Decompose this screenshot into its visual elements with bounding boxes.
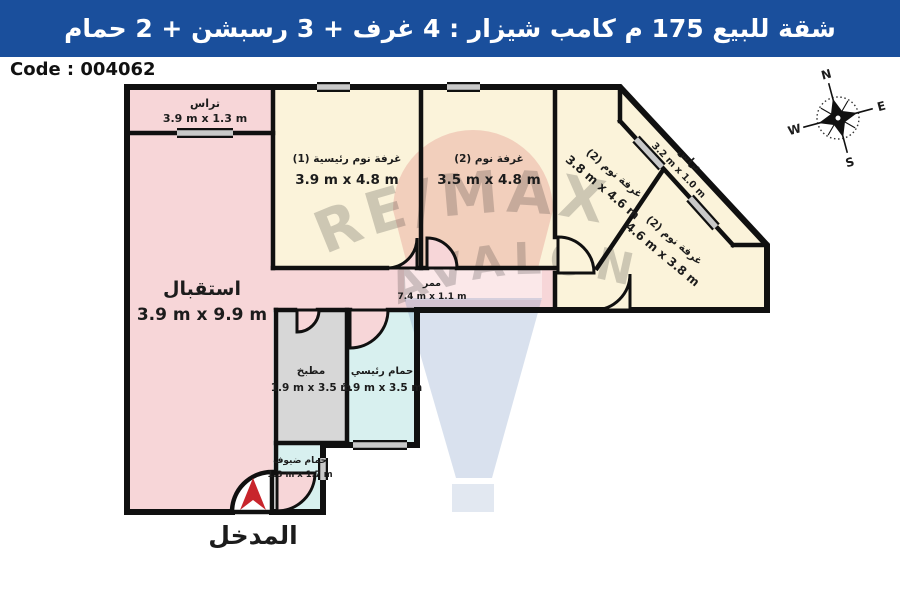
reception-label: استقبال	[163, 278, 241, 300]
floorplan-page: شقة للبيع 175 م كامب شيزار : 4 غرف + 3 ر…	[0, 0, 900, 600]
balloon-cone	[404, 298, 542, 478]
compass-n: N	[820, 66, 833, 82]
balloon-basket	[452, 484, 494, 512]
reception-dims: 3.9 m x 9.9 m	[137, 305, 267, 325]
compass-rose-icon: N E S W	[775, 55, 899, 182]
guest-bathroom-dims: 1.3 m x 1.7 m	[267, 470, 332, 480]
master-bedroom-dims: 3.9 m x 4.8 m	[295, 172, 398, 188]
kitchen-dims: 1.9 m x 3.5 m	[271, 382, 352, 394]
compass-w: W	[786, 121, 802, 138]
bedroom-2-label: غرفة نوم (2)	[454, 153, 523, 165]
terrace-top-label: تراس	[190, 97, 220, 110]
compass-e: E	[876, 99, 888, 115]
guest-bathroom-label: حمام ضيوف	[273, 456, 327, 466]
master-bathroom-dims: 1.9 m x 3.5 m	[342, 382, 423, 394]
master-bathroom-label: حمام رئيسي	[351, 366, 413, 377]
kitchen-label: مطبخ	[297, 365, 326, 377]
corridor-label: ممر	[422, 278, 441, 289]
entrance-label: المدخل	[208, 521, 298, 550]
compass-s: S	[844, 155, 856, 171]
bedroom-2-dims: 3.5 m x 4.8 m	[437, 172, 540, 188]
master-bedroom-label: غرفة نوم رئيسية (1)	[293, 153, 402, 165]
terrace-top-dims: 3.9 m x 1.3 m	[163, 112, 247, 125]
floorplan-svg: RE/MAX AVALON	[0, 0, 900, 600]
corridor-dims: 7.4 m x 1.1 m	[398, 292, 467, 302]
